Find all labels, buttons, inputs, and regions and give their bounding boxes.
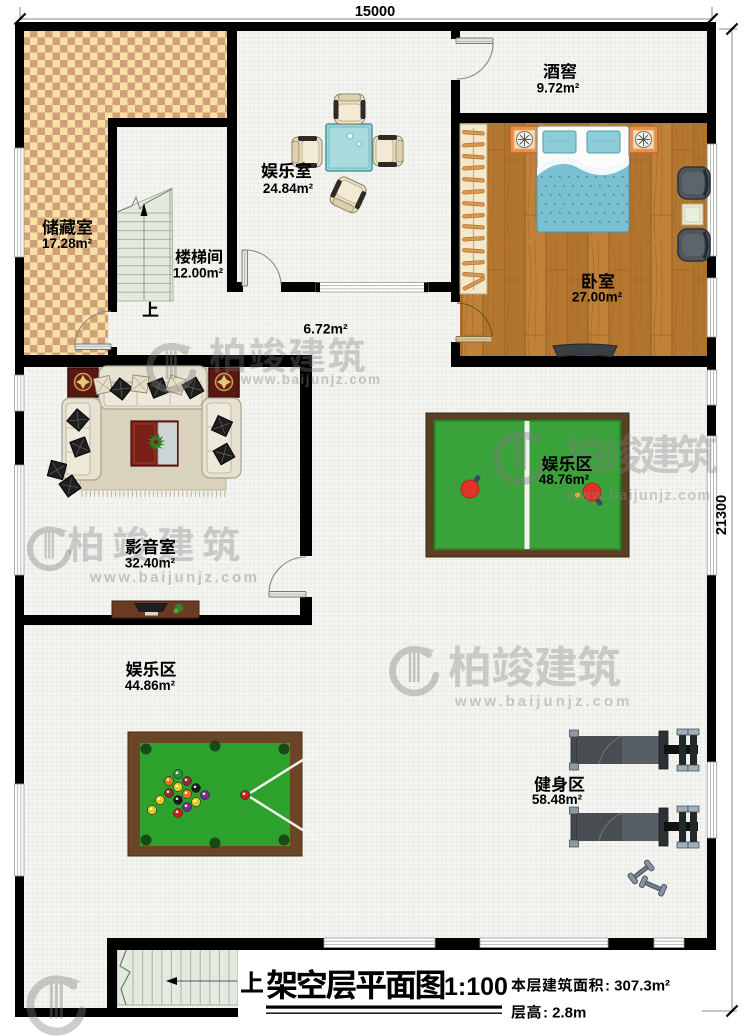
svg-text:: 2.8m: : 2.8m — [543, 1005, 586, 1022]
svg-text:32.40m²: 32.40m² — [125, 556, 176, 571]
svg-text:21300: 21300 — [714, 495, 730, 535]
svg-text:: 307.3m²: : 307.3m² — [605, 978, 670, 995]
svg-text:17.28m²: 17.28m² — [42, 236, 93, 251]
svg-text:www.baijunjz.com: www.baijunjz.com — [454, 693, 632, 710]
svg-text:www.baijunjz.com: www.baijunjz.com — [89, 569, 259, 586]
svg-text:15000: 15000 — [355, 4, 395, 20]
svg-text:27.00m²: 27.00m² — [572, 290, 623, 305]
svg-text:58.48m²: 58.48m² — [532, 792, 583, 807]
svg-text:9.72m²: 9.72m² — [537, 81, 580, 96]
svg-text:1:100: 1:100 — [444, 973, 508, 1001]
svg-text:24.84m²: 24.84m² — [263, 181, 314, 196]
svg-text:6.72m²: 6.72m² — [303, 321, 348, 337]
svg-text:12.00m²: 12.00m² — [173, 266, 224, 281]
svg-text:www.baijunjz.com: www.baijunjz.com — [240, 372, 382, 387]
svg-text:48.76m²: 48.76m² — [539, 472, 590, 487]
svg-text:44.86m²: 44.86m² — [125, 678, 176, 693]
svg-text:www.baijunjz.com: www.baijunjz.com — [566, 488, 711, 504]
